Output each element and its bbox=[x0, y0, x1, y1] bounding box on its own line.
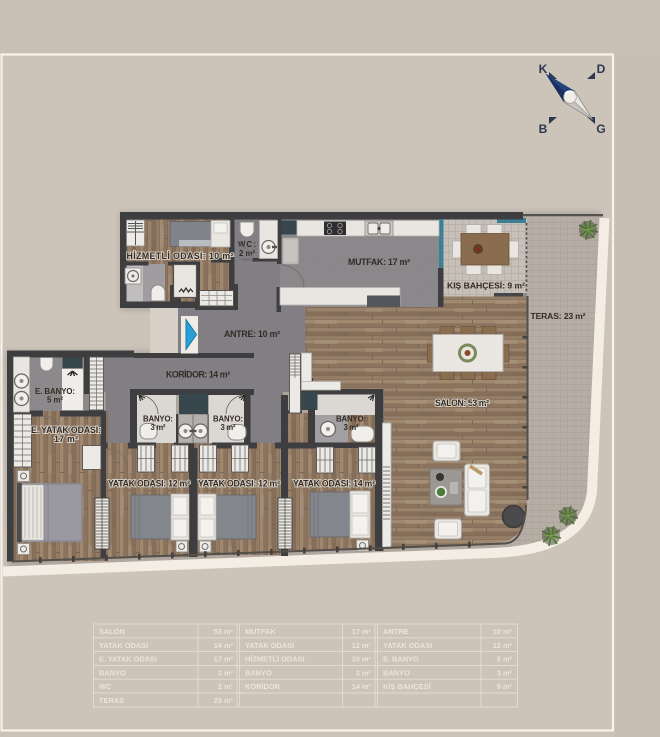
svg-text:BANYO: BANYO bbox=[99, 668, 126, 677]
svg-text:ANTRE: ANTRE bbox=[383, 627, 409, 636]
svg-text:12 m²: 12 m² bbox=[352, 641, 372, 650]
svg-text:E. BANYO: E. BANYO bbox=[383, 655, 419, 664]
svg-text:TERAS: TERAS bbox=[99, 696, 124, 705]
svg-text:53 m²: 53 m² bbox=[214, 627, 234, 636]
svg-text:3 m²: 3 m² bbox=[218, 668, 234, 677]
svg-text:HİZMETLİ ODASI: 10 m²: HİZMETLİ ODASI: 10 m² bbox=[127, 251, 234, 261]
svg-text:5 m²: 5 m² bbox=[497, 655, 513, 664]
svg-text:K: K bbox=[539, 62, 548, 76]
svg-text:12 m²: 12 m² bbox=[493, 641, 513, 650]
svg-text:YATAK ODASI: 14 m²: YATAK ODASI: 14 m² bbox=[293, 479, 375, 489]
svg-text:17 m²: 17 m² bbox=[352, 627, 372, 636]
svg-text:3 m²: 3 m² bbox=[344, 423, 359, 432]
svg-text:2 m²: 2 m² bbox=[218, 682, 234, 691]
svg-text:14 m²: 14 m² bbox=[352, 682, 372, 691]
svg-text:9 m²: 9 m² bbox=[497, 682, 513, 691]
svg-text:WC:: WC: bbox=[238, 240, 256, 249]
svg-text:YATAK ODASI: YATAK ODASI bbox=[245, 641, 294, 650]
svg-text:23 m²: 23 m² bbox=[214, 696, 234, 705]
svg-text:WC: WC bbox=[99, 682, 112, 691]
svg-text:MUTFAK: 17 m²: MUTFAK: 17 m² bbox=[348, 257, 410, 267]
svg-text:SALON: SALON bbox=[99, 627, 125, 636]
svg-text:17 m²: 17 m² bbox=[54, 434, 78, 444]
svg-text:HİZMETLİ ODASI: HİZMETLİ ODASI bbox=[245, 655, 305, 664]
svg-text:KİŞ BAHÇESİ: KİŞ BAHÇESİ bbox=[383, 682, 431, 691]
svg-text:10 m²: 10 m² bbox=[493, 627, 513, 636]
svg-text:3 m²: 3 m² bbox=[151, 423, 166, 432]
svg-text:BANYO: BANYO bbox=[383, 668, 410, 677]
svg-text:TERAS: 23 m²: TERAS: 23 m² bbox=[531, 311, 586, 321]
svg-text:E. YATAK ODASI: E. YATAK ODASI bbox=[99, 655, 157, 664]
svg-text:10 m²: 10 m² bbox=[352, 655, 372, 664]
svg-text:KORİDOR: 14 m²: KORİDOR: 14 m² bbox=[166, 370, 230, 380]
svg-text:ANTRE: 10 m²: ANTRE: 10 m² bbox=[224, 329, 280, 339]
svg-text:YATAK ODASI: YATAK ODASI bbox=[99, 641, 148, 650]
svg-text:G: G bbox=[596, 122, 605, 136]
svg-text:5 m²: 5 m² bbox=[47, 396, 63, 405]
svg-text:YATAK ODASI: 12 m²: YATAK ODASI: 12 m² bbox=[108, 479, 190, 489]
svg-text:D: D bbox=[597, 62, 606, 76]
svg-text:BANYO: BANYO bbox=[245, 668, 272, 677]
svg-text:3 m²: 3 m² bbox=[356, 668, 372, 677]
svg-text:KIŞ BAHÇESİ: 9 m²: KIŞ BAHÇESİ: 9 m² bbox=[447, 281, 525, 291]
svg-text:B: B bbox=[539, 122, 548, 136]
svg-text:YATAK ODASI: YATAK ODASI bbox=[383, 641, 432, 650]
svg-text:YATAK ODASI: 12 m²: YATAK ODASI: 12 m² bbox=[198, 479, 280, 489]
svg-text:3 m²: 3 m² bbox=[497, 668, 513, 677]
svg-text:KORİDOR: KORİDOR bbox=[245, 682, 281, 691]
svg-text:2 m²: 2 m² bbox=[239, 249, 255, 258]
svg-text:14 m²: 14 m² bbox=[214, 641, 234, 650]
svg-text:MUTFAK: MUTFAK bbox=[245, 627, 276, 636]
svg-text:3 m²: 3 m² bbox=[221, 423, 236, 432]
svg-text:17 m²: 17 m² bbox=[214, 655, 234, 664]
svg-text:SALON: 53 m²: SALON: 53 m² bbox=[435, 398, 489, 408]
